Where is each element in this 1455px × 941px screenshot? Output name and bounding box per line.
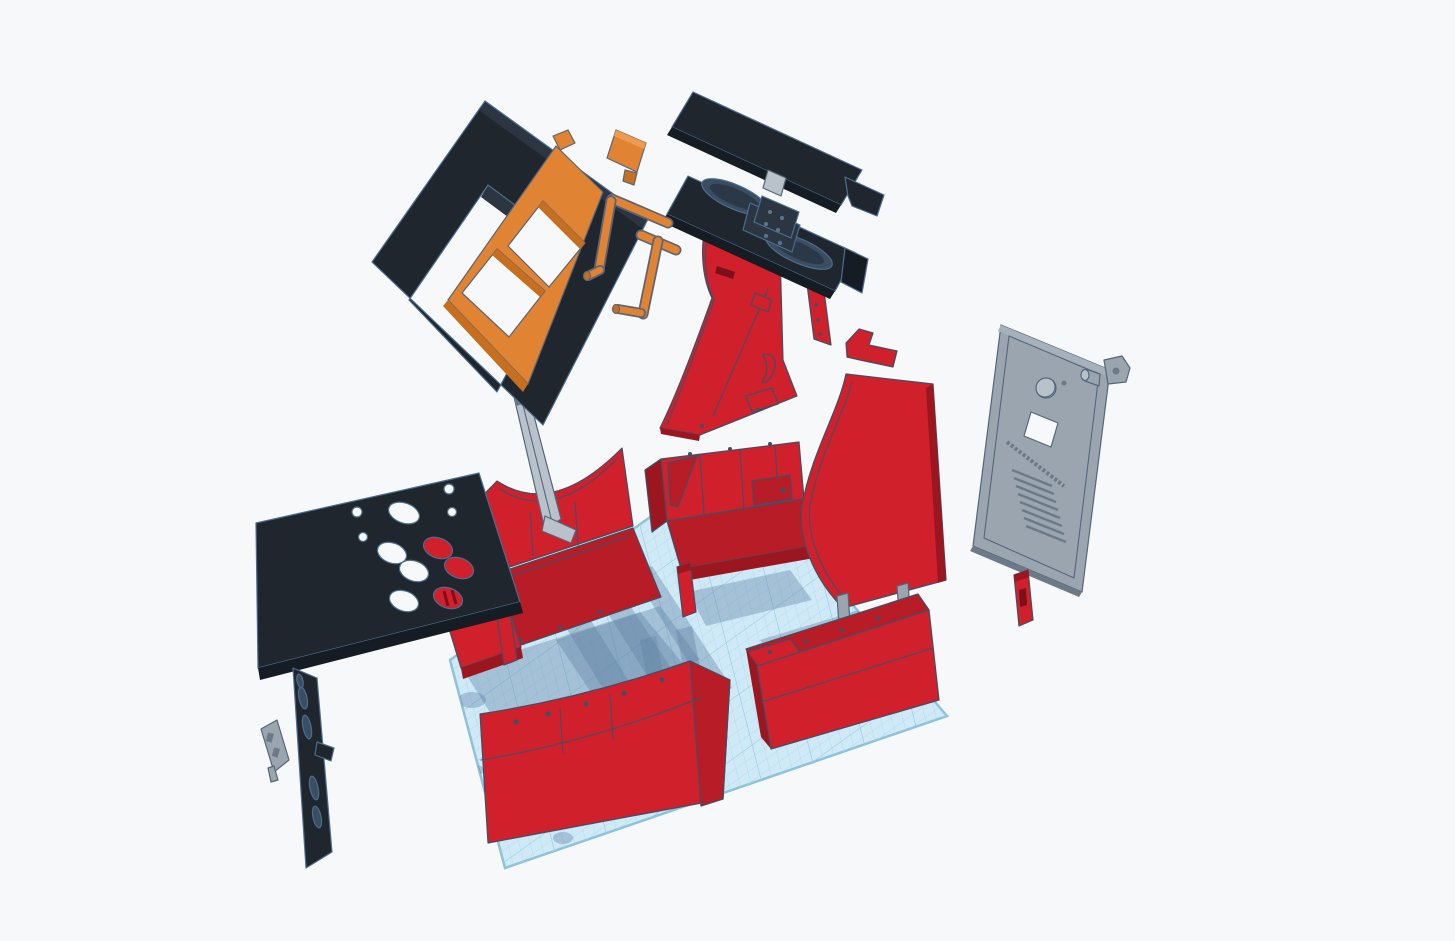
3d-viewport[interactable]: ; (0, 0, 1455, 941)
scene-canvas[interactable]: ; (0, 0, 1455, 941)
